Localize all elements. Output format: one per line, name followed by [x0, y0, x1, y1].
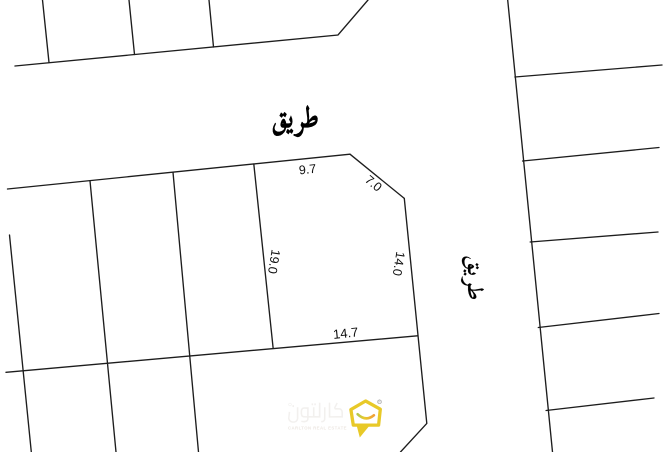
svg-text:CARLTON REAL ESTATE: CARLTON REAL ESTATE: [288, 426, 347, 431]
